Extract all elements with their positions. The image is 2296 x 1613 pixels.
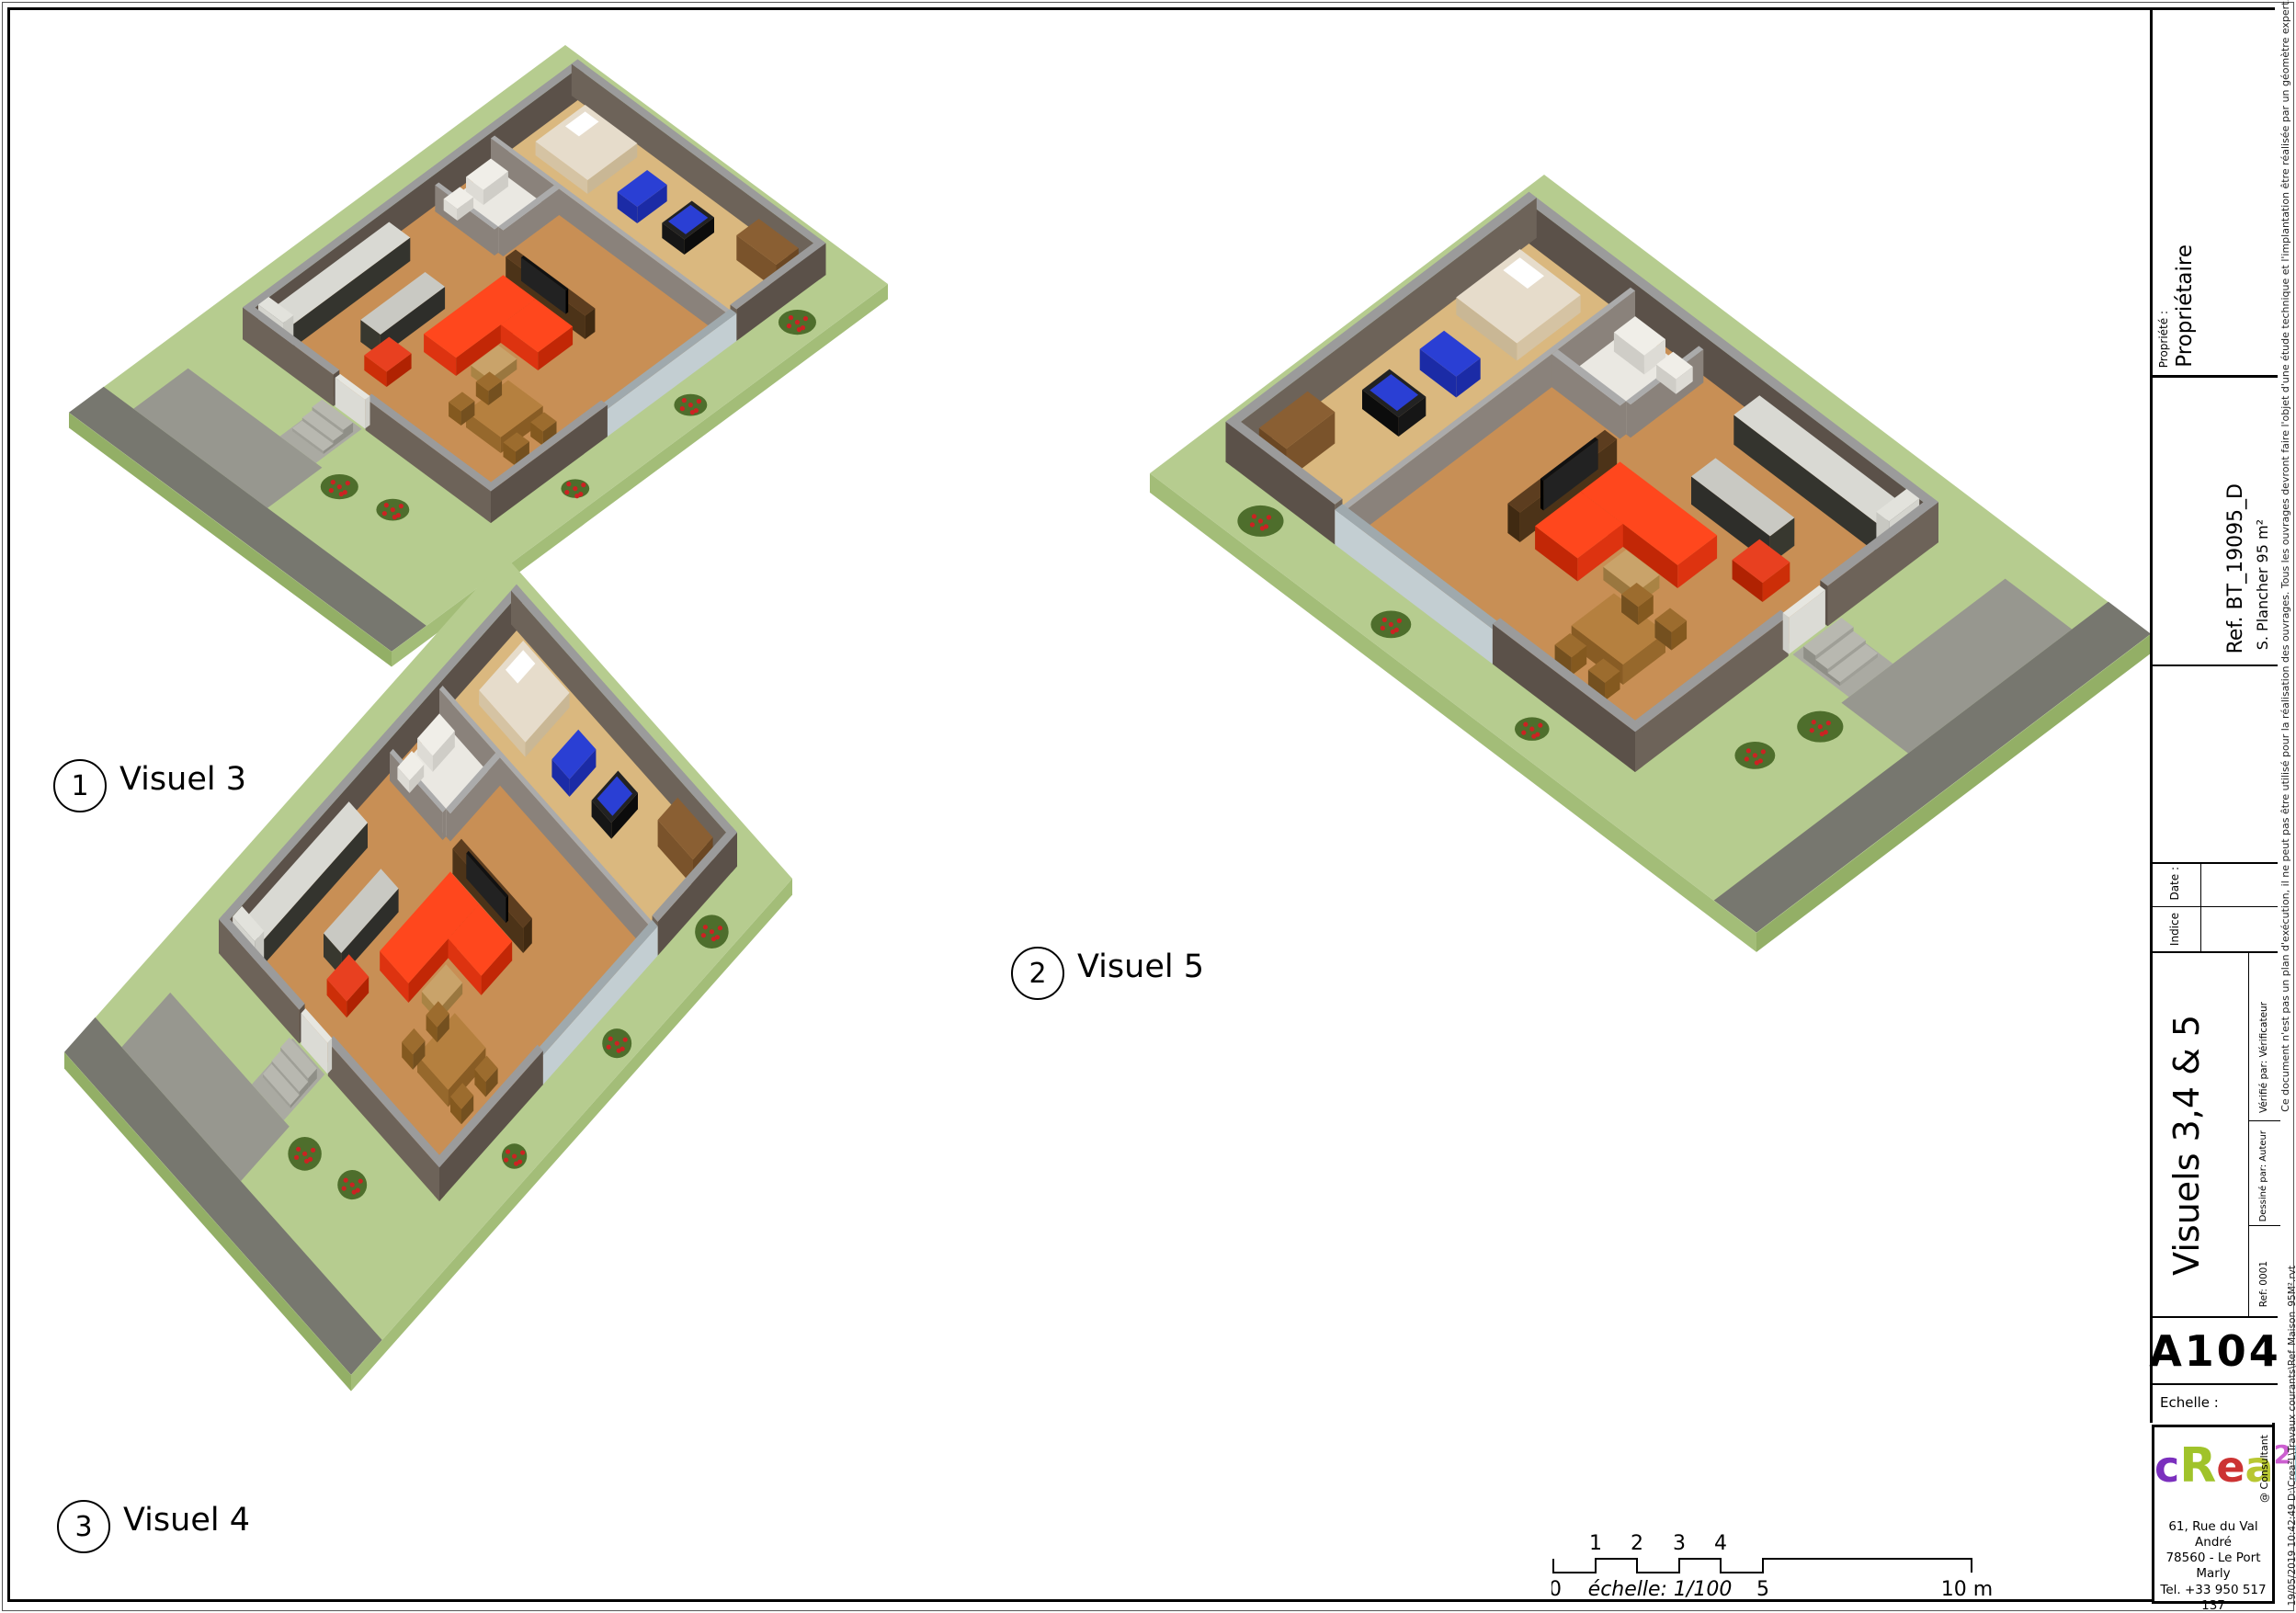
visual-4-number: 3 xyxy=(74,1511,92,1543)
visual-5-label: Visuel 5 xyxy=(1077,947,1204,985)
scale-label: Echelle : xyxy=(2160,1394,2219,1411)
svg-text:10 m: 10 m xyxy=(1941,1578,1993,1601)
property-value: Propriétaire xyxy=(2175,244,2196,368)
consultant-tag: @ Consultant xyxy=(2259,1435,2269,1503)
verified-by: Vérifié par: Vérificateur xyxy=(2259,1002,2269,1113)
company-logo: cRea2l xyxy=(2154,1438,2259,1494)
indice-label-cell: Indice xyxy=(2153,907,2201,951)
svg-text:1: 1 xyxy=(1589,1532,1602,1555)
sheet-number: A104 xyxy=(2149,1326,2281,1376)
company-address: 61, Rue du Val André78560 - Le Port Marl… xyxy=(2154,1519,2272,1613)
sheet-title: Visuels 3,4 & 5 xyxy=(2169,1015,2204,1276)
visual-5-callout: 2 Visuel 5 xyxy=(1011,947,1204,1000)
visual-panel-4 xyxy=(41,528,813,1411)
floor-area: S. Plancher 95 m² xyxy=(2256,519,2270,650)
indice-label: Indice xyxy=(2169,913,2180,946)
property-label: Propriété : xyxy=(2158,311,2169,368)
date-label-cell: Date : xyxy=(2153,864,2201,906)
visual-panel-5 xyxy=(1126,147,2192,974)
titleblock-title-cell: Visuels 3,4 & 5 Vérifié par: Vérificateu… xyxy=(2150,951,2278,1316)
titleblock-signatures-column: Vérifié par: Vérificateur Dessiné par: A… xyxy=(2248,953,2280,1316)
titleblock-project-cell: S. Plancher 95 m² Ref. BT_19095_D xyxy=(2150,375,2278,665)
svg-text:échelle: 1/100: échelle: 1/100 xyxy=(1588,1578,1733,1601)
visual-5-rendering xyxy=(1126,147,2192,974)
visual-4-number-circle: 3 xyxy=(57,1500,110,1553)
visual-5-number: 2 xyxy=(1029,958,1046,990)
svg-text:5: 5 xyxy=(1756,1578,1769,1601)
scale-bar-graphic: 12340510 méchelle: 1/100 xyxy=(1552,1526,2177,1608)
scale-cell: Echelle : xyxy=(2150,1383,2278,1423)
svg-text:2: 2 xyxy=(1631,1532,1643,1555)
svg-text:0: 0 xyxy=(1552,1578,1562,1601)
date-label: Date : xyxy=(2169,867,2180,901)
titleblock-property-cell: Propriété : Propriétaire xyxy=(2150,10,2278,375)
company-block: cRea2l @ Consultant 61, Rue du Val André… xyxy=(2152,1425,2275,1604)
ref-field: Ref: 0001 xyxy=(2259,1261,2269,1307)
disclaimer-note: Ce document n'est pas un plan d'exécutio… xyxy=(2280,0,2290,1112)
ref-cell: Ref: 0001 xyxy=(2249,1226,2280,1316)
svg-text:3: 3 xyxy=(1673,1532,1686,1555)
reference: Ref. BT_19095_D xyxy=(2226,483,2246,653)
visual-3-number-circle: 1 xyxy=(53,759,107,812)
visual-4-callout: 3 Visuel 4 xyxy=(57,1500,250,1553)
drawn-by: Dessiné par: Auteur xyxy=(2259,1130,2268,1221)
sheet-number-cell: A104 xyxy=(2150,1316,2278,1383)
visual-4-label: Visuel 4 xyxy=(123,1500,250,1539)
svg-text:4: 4 xyxy=(1714,1532,1727,1555)
visual-3-label: Visuel 3 xyxy=(119,759,246,798)
visual-3-number: 1 xyxy=(71,770,88,802)
titleblock-indice-row: Indice xyxy=(2150,906,2278,951)
verified-by-cell: Vérifié par: Vérificateur xyxy=(2249,953,2280,1121)
file-info-note: 19/05/2019 10:42:49 D:\Crea²L\Travaux co… xyxy=(2288,1266,2296,1606)
drawn-by-cell: Dessiné par: Auteur xyxy=(2249,1121,2280,1226)
visual-4-rendering xyxy=(41,528,813,1411)
scale-bar: 12340510 méchelle: 1/100 xyxy=(1552,1526,2177,1608)
titleblock-revision-area xyxy=(2150,665,2278,862)
visual-3-callout: 1 Visuel 3 xyxy=(53,759,246,812)
drawing-sheet: 1 Visuel 3 2 Visuel 5 3 Visuel 4 1234051… xyxy=(0,0,2296,1613)
titleblock-date-row: Date : xyxy=(2150,862,2278,906)
visual-5-number-circle: 2 xyxy=(1011,947,1064,1000)
